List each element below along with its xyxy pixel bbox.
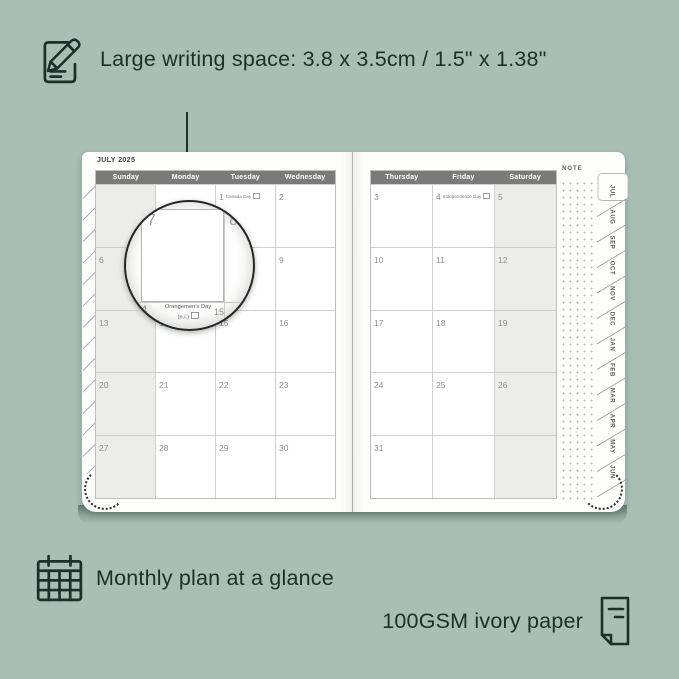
- feature-writing-space: Large writing space: 3.8 x 3.5cm / 1.5" …: [36, 32, 547, 86]
- weekday-header: Monday: [156, 171, 216, 184]
- date-number: 10: [374, 255, 383, 265]
- day-cell: 28: [156, 435, 216, 498]
- day-cell: 2: [276, 184, 335, 247]
- feature-paper: 100GSM ivory paper: [382, 594, 635, 648]
- right-month-grid: ThursdayFridaySaturday34Independence Day…: [370, 170, 557, 499]
- week-row: 101112: [371, 247, 556, 310]
- date-number: 27: [99, 443, 108, 453]
- week-row: 34Independence Day5: [371, 184, 556, 247]
- product-infographic: Large writing space: 3.8 x 3.5cm / 1.5" …: [0, 0, 679, 679]
- date-number: 1: [219, 192, 224, 202]
- stitch-arc-bottom-right: [581, 468, 623, 510]
- day-cell: 26: [495, 372, 556, 435]
- spine-line: [352, 152, 353, 512]
- magnified-date-14: 14: [134, 303, 147, 317]
- day-cell: 30: [276, 435, 335, 498]
- date-number: 6: [99, 255, 104, 265]
- month-tab-oct: OCT: [608, 261, 614, 275]
- weekday-header-row: ThursdayFridaySaturday: [371, 171, 556, 184]
- date-number: 11: [436, 255, 445, 265]
- weekday-header: Saturday: [494, 171, 556, 184]
- day-cell: 10: [371, 247, 433, 310]
- day-cell: 18: [433, 310, 495, 373]
- month-tab-feb: FEB: [608, 363, 614, 377]
- month-tab-mar: MAR: [608, 388, 614, 404]
- day-cell: 9: [276, 247, 335, 310]
- date-number: 19: [498, 318, 507, 328]
- flag-icon: [483, 193, 490, 199]
- month-tab-nov: NOV: [608, 286, 614, 301]
- date-number: 20: [99, 380, 108, 390]
- week-row: 171819: [371, 310, 556, 373]
- holiday-label: Canada Day: [226, 194, 260, 199]
- date-number: 17: [374, 318, 383, 328]
- month-tab-dec: DEC: [608, 312, 614, 327]
- date-number: 28: [159, 443, 168, 453]
- month-tab-sep: SEP: [608, 236, 614, 250]
- weekday-header: Thursday: [371, 171, 433, 184]
- date-number: 9: [279, 255, 284, 265]
- day-cell: [433, 435, 495, 498]
- date-number: 23: [279, 380, 288, 390]
- date-number: 22: [219, 380, 228, 390]
- day-cell: [495, 435, 556, 498]
- day-cell: 21: [156, 372, 216, 435]
- day-cell: 19: [495, 310, 556, 373]
- holiday-label: Independence Day: [443, 194, 490, 199]
- weekday-header-row: SundayMondayTuesdayWednesday: [96, 171, 335, 184]
- stitch-arc-bottom-left: [84, 468, 126, 510]
- note-dot-grid: [560, 180, 596, 502]
- day-cell: 20: [96, 372, 156, 435]
- day-cell: 25: [433, 372, 495, 435]
- spine-shading: [342, 152, 364, 512]
- month-tab-apr: APR: [608, 414, 614, 429]
- date-number: 16: [279, 318, 288, 328]
- day-cell: 3: [371, 184, 433, 247]
- day-cell: 29: [216, 435, 276, 498]
- day-cell: 13: [96, 310, 156, 373]
- date-number: 21: [159, 380, 168, 390]
- date-number: 4: [436, 192, 441, 202]
- flag-icon: [253, 193, 260, 199]
- week-row: 242526: [371, 372, 556, 435]
- month-tab-jan: JAN: [608, 338, 614, 352]
- day-cell: 5: [495, 184, 556, 247]
- day-cell: 31: [371, 435, 433, 498]
- day-cell: 12: [495, 247, 556, 310]
- holiday-line1: Orangemen's Day: [165, 304, 212, 310]
- magnified-date-8: 8: [229, 212, 238, 230]
- magnified-grid-line-vertical: [224, 202, 225, 329]
- day-cell: 16: [276, 310, 335, 373]
- day-cell: 11: [433, 247, 495, 310]
- day-cell: 22: [216, 372, 276, 435]
- date-number: 3: [374, 192, 379, 202]
- date-number: 13: [99, 318, 108, 328]
- date-number: 29: [219, 443, 228, 453]
- day-cell: 23: [276, 372, 335, 435]
- date-number: 12: [498, 255, 507, 265]
- month-tab-aug: AUG: [608, 209, 614, 224]
- calendar-grid-icon: [34, 552, 84, 604]
- weekday-header: Sunday: [96, 171, 156, 184]
- magnifier-circle: 7 8 14 15 Orangemen's Day (n.i.): [124, 200, 255, 331]
- day-cell: 17: [371, 310, 433, 373]
- writing-space-label: Large writing space: 3.8 x 3.5cm / 1.5" …: [100, 47, 547, 72]
- holiday-line2: (n.i.): [177, 314, 189, 320]
- month-title: JULY 2025: [97, 157, 135, 164]
- date-number: 24: [374, 380, 383, 390]
- week-row: 31: [371, 435, 556, 498]
- notepad-pencil-icon: [36, 32, 88, 86]
- date-number: 2: [279, 192, 284, 202]
- weekday-header: Tuesday: [216, 171, 276, 184]
- date-number: 25: [436, 380, 445, 390]
- date-number: 5: [498, 192, 503, 202]
- month-tab-jul: JUL: [608, 185, 614, 198]
- date-number: 30: [279, 443, 288, 453]
- weekday-header: Wednesday: [275, 171, 335, 184]
- flag-icon: [191, 312, 199, 319]
- day-cell: 24: [371, 372, 433, 435]
- note-column-label: NOTE: [562, 166, 583, 172]
- weekday-header: Friday: [433, 171, 495, 184]
- month-tab-may: MAY: [608, 439, 614, 454]
- month-tabs: JULAUGSEPOCTNOVDECJANFEBMARAPRMAYJUN: [596, 172, 630, 502]
- week-row: 20212223: [96, 372, 335, 435]
- monthly-plan-label: Monthly plan at a glance: [96, 566, 334, 591]
- date-number: 18: [436, 318, 445, 328]
- feature-monthly-plan: Monthly plan at a glance: [34, 552, 334, 604]
- magnified-date-7: 7: [147, 212, 156, 230]
- week-row: 27282930: [96, 435, 335, 498]
- magnified-holiday-label: Orangemen's Day (n.i.): [153, 304, 223, 322]
- date-number: 26: [498, 380, 507, 390]
- day-cell: 4Independence Day: [433, 184, 495, 247]
- paper-label: 100GSM ivory paper: [382, 609, 583, 634]
- paper-sheet-icon: [595, 594, 635, 648]
- date-number: 31: [374, 443, 383, 453]
